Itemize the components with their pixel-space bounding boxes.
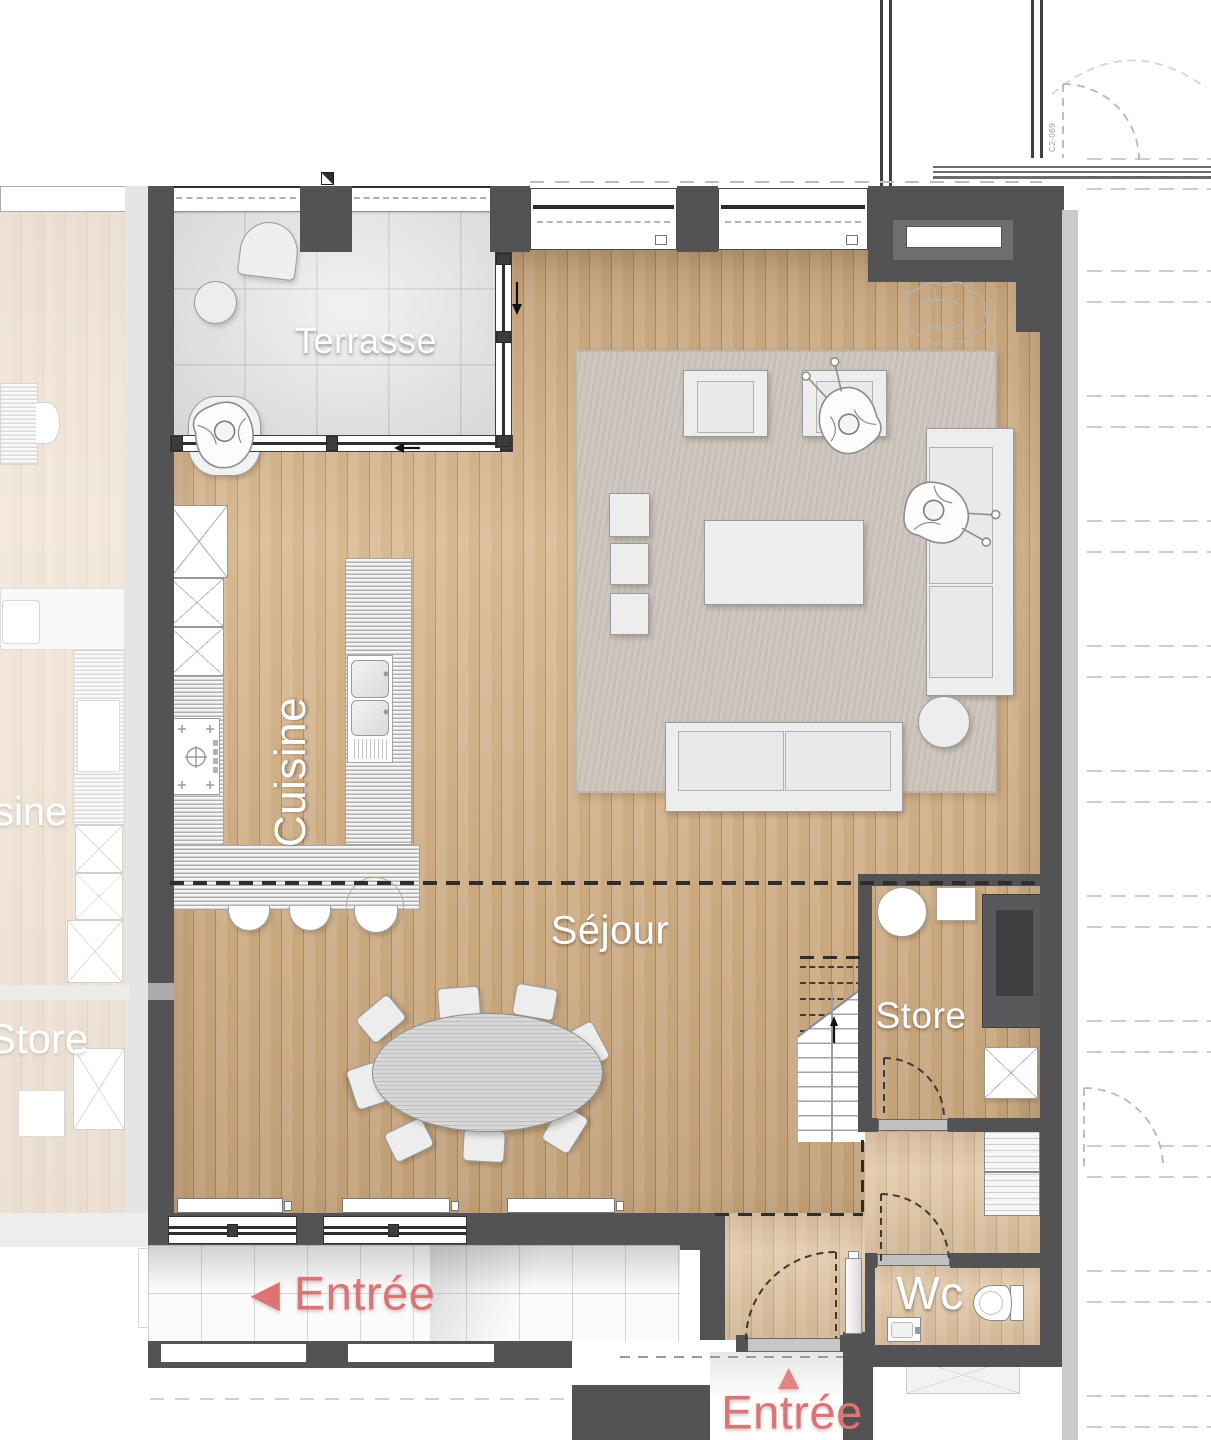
radiator-valve xyxy=(616,1201,624,1211)
store-round-table xyxy=(877,887,927,937)
neighbor-cuisine-label: sine xyxy=(0,790,67,835)
cooktop xyxy=(172,718,220,795)
wall-pier xyxy=(677,186,718,252)
radiator xyxy=(906,226,1002,248)
neighbor-divider-wall xyxy=(0,985,130,1000)
sill-dashed-line xyxy=(530,181,1042,183)
floor-plan: C2-069 sine Store xyxy=(0,0,1211,1440)
facade-window xyxy=(160,1343,307,1363)
wall-wc-south xyxy=(865,1345,1062,1367)
hall-dashed-line xyxy=(861,1140,864,1215)
glass-connector xyxy=(496,435,511,447)
level-change-dashed-line xyxy=(170,881,1042,885)
neighbor-window xyxy=(0,186,126,212)
technical-shaft xyxy=(982,894,1045,1028)
neighbor-island xyxy=(0,383,38,465)
cuisine-label: Cuisine xyxy=(266,697,316,847)
window-top xyxy=(530,188,677,250)
neighbor-unit: sine Store xyxy=(0,0,148,1440)
wall-hall-left xyxy=(700,1213,725,1340)
island-sink-panel xyxy=(347,655,393,763)
sink-basin xyxy=(351,700,389,736)
corridor-entrance-arrow-icon: ◀ xyxy=(251,1274,281,1316)
kitchen-tall-cabinet xyxy=(170,627,224,676)
wall-right xyxy=(1040,210,1062,1365)
corridor-shadow xyxy=(430,1245,570,1341)
neighbor-cabinet xyxy=(75,825,123,873)
terrace-railing xyxy=(174,186,300,212)
radiator-valve xyxy=(451,1201,459,1211)
door-threshold-store xyxy=(878,1119,948,1131)
facade-line-horizontal xyxy=(933,166,1211,179)
store-label: Store xyxy=(876,995,967,1037)
hall-radiator xyxy=(845,1258,862,1334)
terrace-glass-wall-east xyxy=(495,252,512,448)
facade-window xyxy=(347,1343,495,1363)
stair-stringer xyxy=(831,990,833,1142)
hall-radiator-cap xyxy=(848,1251,859,1259)
wall-pier xyxy=(490,186,530,252)
wall-store-south xyxy=(858,1118,878,1132)
dining-table xyxy=(372,1013,603,1132)
stair-void-dashed-line xyxy=(800,956,864,959)
outside-dashed-line xyxy=(150,1398,570,1400)
window-top xyxy=(718,188,868,250)
glass-connector xyxy=(496,253,511,265)
glass-connector xyxy=(171,436,183,451)
roof-symbol xyxy=(321,172,334,185)
neighbor-cooktop xyxy=(77,700,120,772)
neighbor-cabinet xyxy=(67,920,123,983)
glass-connector xyxy=(496,331,511,343)
pouf xyxy=(918,696,970,748)
neighbor-sink xyxy=(2,600,40,644)
terrace-round-table xyxy=(194,281,237,324)
terrasse-label: Terrasse xyxy=(295,320,437,362)
radiator xyxy=(507,1198,615,1213)
glass-connector xyxy=(326,436,338,451)
neighbor-store-label: Store xyxy=(0,1015,88,1063)
door-threshold-main xyxy=(745,1338,843,1352)
neighbor-box xyxy=(18,1090,65,1137)
sejour-label: Séjour xyxy=(551,909,670,954)
terrace-glass-wall-south xyxy=(170,435,513,452)
side-table xyxy=(610,543,649,585)
crossed-panel xyxy=(984,1047,1038,1099)
door-code-label: C2-069 xyxy=(1048,123,1057,152)
wall-store-west xyxy=(858,874,872,1132)
facade-line-vertical-right xyxy=(1031,0,1043,158)
wall-block-bottom xyxy=(572,1385,710,1440)
neighbor-cabinet xyxy=(75,873,123,920)
wall-pier xyxy=(300,186,352,252)
window-bottom xyxy=(168,1216,297,1244)
window-bottom xyxy=(323,1216,467,1244)
terrace-railing xyxy=(352,186,490,212)
coffee-table xyxy=(704,520,864,605)
side-table xyxy=(610,593,649,635)
facade-line-vertical-left xyxy=(880,0,892,186)
wall-left xyxy=(148,186,174,1250)
washbasin xyxy=(887,1317,921,1342)
corridor-entrance-text: Entrée xyxy=(294,1267,435,1320)
wall-wc-north xyxy=(950,1253,1042,1268)
door-swing-neighbor-top xyxy=(1063,84,1139,160)
sink-drainer xyxy=(351,739,389,759)
staircase xyxy=(798,956,865,1142)
neighbor-lower-wall xyxy=(0,1213,148,1247)
entrance-hall-floor xyxy=(708,1213,865,1340)
radiator xyxy=(177,1198,283,1213)
dining-chair xyxy=(462,1129,506,1163)
sink-basin xyxy=(351,660,389,698)
corridor-entrance-label: ◀ Entrée xyxy=(251,1266,436,1321)
slab-edge-right xyxy=(1062,210,1078,1440)
main-entrance-label: Entrée xyxy=(721,1385,862,1440)
kitchen-tall-cabinet xyxy=(170,578,224,627)
wardrobe-shelves xyxy=(984,1126,1040,1216)
toilet-tank xyxy=(1010,1285,1024,1321)
chaise-sofa xyxy=(926,428,1014,696)
neighbor-stool xyxy=(36,402,60,444)
balcony-dashed-lines xyxy=(1078,270,1211,1440)
toilet xyxy=(973,1283,1025,1323)
neighbor-wall xyxy=(125,186,148,1213)
wall-store-south xyxy=(948,1118,1042,1132)
sofa xyxy=(665,722,903,812)
door-swing-neighbor-top-2 xyxy=(1052,60,1206,94)
wc-label: Wc xyxy=(896,1266,963,1320)
store-box xyxy=(936,887,976,921)
wall-joint xyxy=(148,983,174,1000)
porch-dashed-line xyxy=(620,1356,843,1358)
armchair xyxy=(802,370,887,437)
door-threshold-wc xyxy=(877,1254,950,1266)
hall-dashed-line xyxy=(715,1213,863,1216)
radiator-valve xyxy=(284,1201,292,1211)
radiator xyxy=(342,1198,450,1213)
side-table xyxy=(609,493,650,537)
armchair xyxy=(683,370,768,437)
kitchen-tall-cabinet xyxy=(170,505,228,578)
